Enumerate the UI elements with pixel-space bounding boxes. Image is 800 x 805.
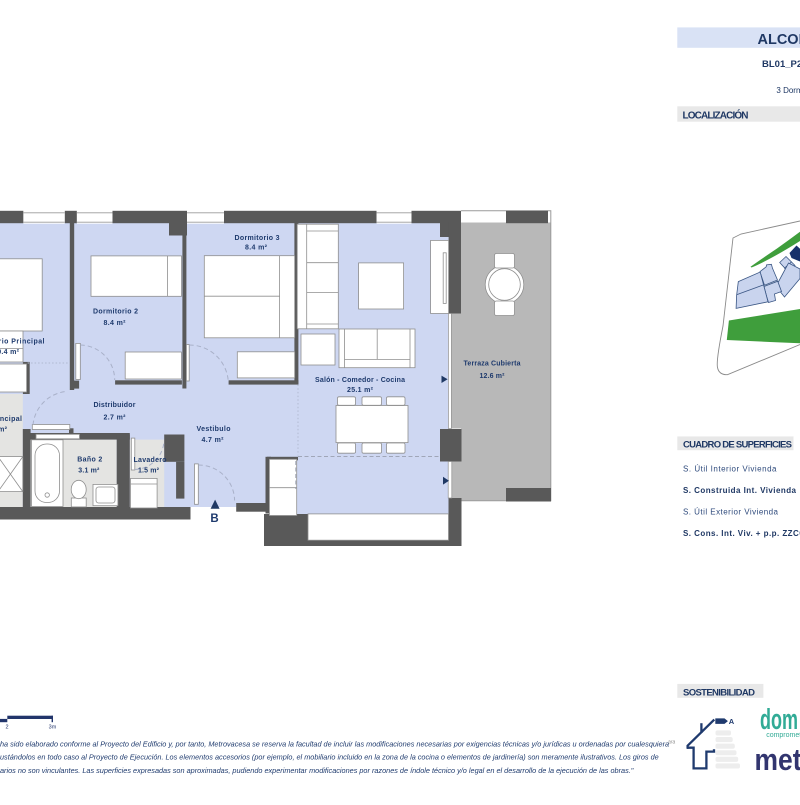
svg-text:ustándolos en todo caso al Pro: ustándolos en todo caso al Proyecto de E… [0, 753, 659, 762]
svg-text:3m: 3m [49, 725, 57, 731]
svg-text:arios no son vinculantes. Las: arios no son vinculantes. Las superficie… [0, 766, 634, 775]
svg-text:CUADRO DE SUPERFICIES: CUADRO DE SUPERFICIES [683, 440, 792, 451]
svg-text:ara: ara [668, 740, 675, 746]
svg-text:Vestibulo: Vestibulo [197, 426, 231, 433]
svg-text:S. Construida Int. Vivienda: S. Construida Int. Vivienda [683, 486, 797, 495]
svg-text:S. Útil Interior Vivienda: S. Útil Interior Vivienda [683, 465, 777, 474]
svg-text:10.4 m²: 10.4 m² [0, 349, 20, 356]
svg-text:ha sido elaborado conforme al: ha sido elaborado conforme al Proyecto d… [0, 739, 669, 748]
svg-text:S. Útil Exterior Vivienda: S. Útil Exterior Vivienda [683, 508, 779, 517]
svg-text:3 Dormitorios: 3 Dormitorios [776, 86, 800, 95]
svg-text:8.4 m²: 8.4 m² [104, 320, 127, 327]
svg-text:Baño Principal: Baño Principal [0, 416, 22, 423]
svg-text:8.4 m²: 8.4 m² [245, 245, 268, 252]
svg-text:Baño 2: Baño 2 [77, 457, 102, 464]
svg-text:Terraza Cubierta: Terraza Cubierta [464, 360, 521, 367]
svg-text:3.8 m²: 3.8 m² [0, 427, 8, 434]
svg-text:25.1 m²: 25.1 m² [347, 387, 374, 394]
svg-text:met: met [755, 742, 800, 777]
svg-text:S. Cons. Int. Viv. + p.p. ZZCC: S. Cons. Int. Viv. + p.p. ZZCC [683, 529, 800, 538]
svg-text:Distribuidor: Distribuidor [94, 402, 136, 409]
svg-text:Dormitorio 3: Dormitorio 3 [235, 235, 280, 242]
svg-text:Lavadero: Lavadero [134, 457, 167, 464]
svg-text:1.5 m²: 1.5 m² [138, 467, 160, 474]
svg-text:2.7 m²: 2.7 m² [104, 415, 127, 422]
svg-text:A: A [729, 717, 735, 726]
svg-text:4.7 m²: 4.7 m² [202, 437, 225, 444]
svg-text:2: 2 [5, 725, 8, 731]
svg-text:B: B [210, 513, 218, 525]
svg-text:dom: dom [760, 704, 798, 736]
svg-text:BL01_P2_3D: BL01_P2_3D [762, 59, 800, 70]
svg-text:SOSTENIBILIDAD: SOSTENIBILIDAD [683, 687, 755, 698]
svg-text:Dormitorio 2: Dormitorio 2 [93, 309, 138, 316]
svg-text:LOCALIZACIÓN: LOCALIZACIÓN [683, 108, 749, 121]
svg-text:comprometidos con: comprometidos con [766, 732, 800, 739]
svg-text:3.1 m²: 3.1 m² [78, 467, 100, 474]
svg-text:Salón - Comedor - Cocina: Salón - Comedor - Cocina [315, 377, 405, 384]
svg-text:12.6 m²: 12.6 m² [480, 373, 506, 380]
svg-text:Dormitorio Principal: Dormitorio Principal [0, 338, 45, 345]
svg-text:ALCORA: ALCORA [758, 32, 800, 48]
